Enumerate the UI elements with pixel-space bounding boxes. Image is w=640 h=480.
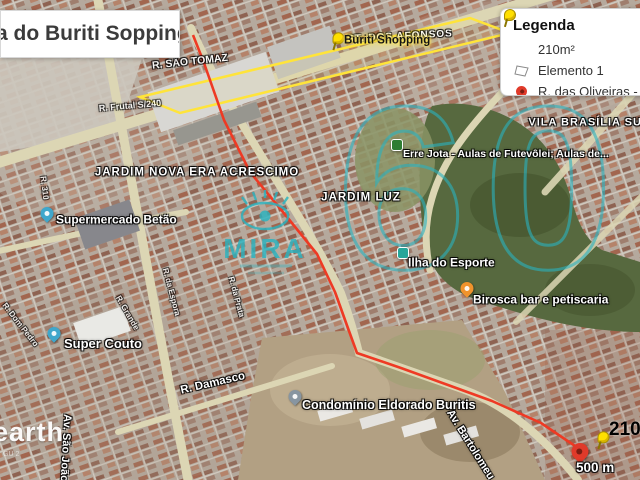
poi-label-erre-jota: Erre Jota - Aulas de Futevôlei; Aulas de…: [403, 149, 609, 160]
legend-item-label: 210m²: [538, 42, 575, 57]
scale-text: 500 m: [576, 461, 614, 475]
watermark-mira-text: MIRA: [223, 233, 307, 264]
poi-label-ilha-do-esporte: Ilha do Esporte: [408, 256, 495, 268]
legend-item-label: Elemento 1: [538, 63, 604, 78]
poi-label-super-couto: Super Couto: [64, 337, 142, 350]
street-label-r-310: R. 310: [39, 176, 50, 200]
map-screenshot: MIRA 60 ST. DOS AFONSOS VILA BRASÍLIA SU…: [0, 0, 640, 480]
poi-label-birosca: Birosca bar e petiscaria: [473, 293, 608, 305]
page-title: a do Buriti Sopping: [0, 22, 180, 46]
legend: Legenda 210m² Elemento 1 R. das Oliveira…: [500, 8, 640, 96]
area-label-vila-brasilia-sul: VILA BRASÍLIA SUL: [528, 118, 640, 129]
destination-red-pin[interactable]: [572, 443, 585, 456]
condominio-pin[interactable]: [289, 390, 302, 403]
legend-item-label: R. das Oliveiras - Jard: [538, 84, 640, 96]
google-earth-logo: earth: [0, 417, 64, 448]
map-attribution: GU 2: [3, 451, 19, 458]
legend-item: 210m²: [513, 39, 640, 60]
supermercado-betao-pin[interactable]: [41, 207, 54, 220]
yellow-pushpin-icon: [513, 40, 530, 59]
area-label-jardim-luz: JARDIM LUZ: [321, 192, 401, 204]
polygon-icon: [513, 65, 530, 77]
legend-item: Elemento 1: [513, 60, 640, 81]
title-box: a do Buriti Sopping: [0, 10, 180, 58]
poi-label-supermercado-betao: Supermercado Betão: [56, 213, 177, 225]
birosca-pin[interactable]: [461, 282, 474, 295]
poi-label-buriti-shopping: Buriti Shopping: [344, 35, 430, 47]
legend-item: R. das Oliveiras - Jard: [513, 81, 640, 96]
destination-pushpin-icon[interactable]: [595, 431, 610, 450]
red-pin-icon: [513, 86, 530, 96]
area-label-jardim-nova-era: JARDIM NOVA ERA ACRESCIMO: [95, 167, 299, 179]
destination-area-label: 210m²: [609, 419, 640, 441]
watermark-60: 60: [337, 59, 631, 318]
erre-jota-marker[interactable]: [391, 139, 403, 151]
buriti-shopping-pushpin-icon[interactable]: [330, 32, 345, 51]
poi-label-condominio: Condomínio Eldorado Buritis: [302, 399, 476, 412]
legend-heading: Legenda: [513, 17, 640, 34]
super-couto-pin[interactable]: [48, 327, 61, 340]
